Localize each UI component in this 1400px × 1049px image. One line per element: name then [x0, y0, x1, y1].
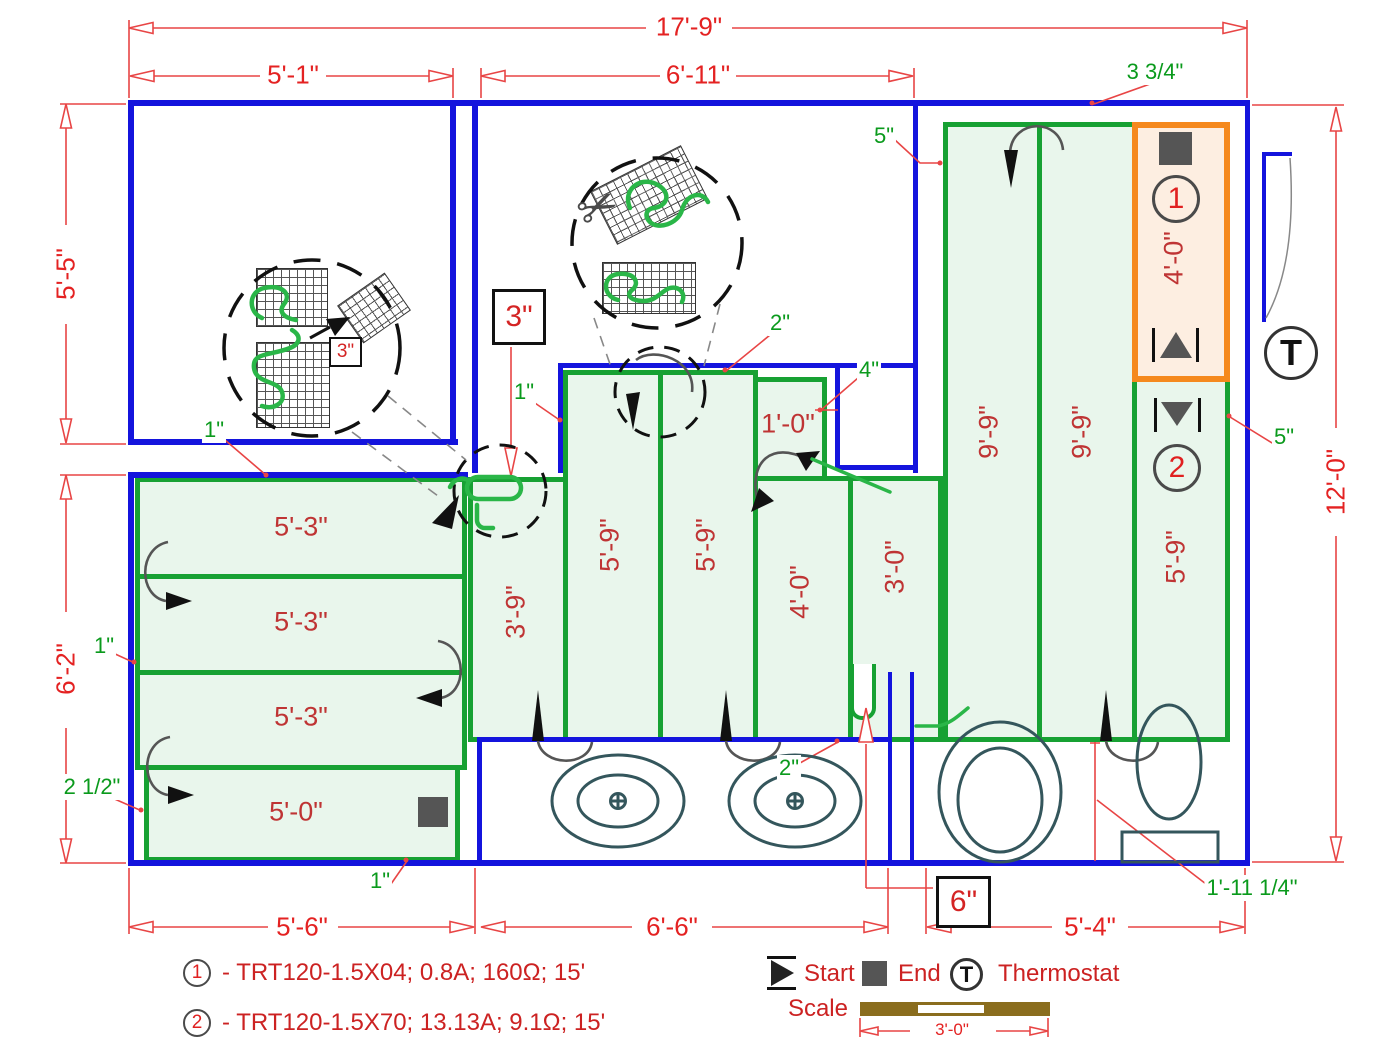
mat-label-1-0: 1'-0" [761, 409, 815, 440]
wall-vanity-top [477, 737, 890, 742]
gap-2-sink-label: 2" [777, 755, 801, 781]
mat-label-area1: 4'-0" [1159, 231, 1190, 285]
dim-room2-width: 6'-11" [662, 60, 734, 91]
dim-room1-height: 5'-5" [51, 244, 82, 304]
wall-stub-a [888, 672, 892, 866]
box-3-detail-text: 3" [337, 341, 354, 363]
box-3-detail: 3" [329, 337, 362, 367]
legend-start-bar-top [767, 956, 796, 959]
wall-top [128, 100, 1250, 106]
mat-label-5-9a: 5'-9" [595, 518, 626, 572]
gap-4-label: 4" [857, 357, 881, 383]
legend-thermostat-label: Thermostat [998, 960, 1119, 988]
wall-room1-right [450, 100, 456, 445]
scale-bar-white-segment [918, 1005, 984, 1013]
wall-room1-left [128, 100, 134, 445]
area2-number-circle: 2 [1153, 444, 1201, 492]
dim-bottom-middle: 6'-6" [642, 912, 702, 943]
mat-detail-hatch-1 [256, 268, 328, 327]
wall-right [1245, 100, 1250, 866]
area1-number-circle: 1 [1152, 175, 1200, 223]
legend-end-icon [862, 961, 887, 986]
dim-scale-length: 3'-0" [931, 1020, 973, 1040]
legend-start-label: Start [804, 960, 855, 988]
mat-label-area2: 5'-9" [1161, 530, 1192, 584]
start-symbol-bar-right [1196, 328, 1199, 362]
cable-slot [850, 664, 876, 720]
door-leaf-h [1262, 152, 1292, 156]
door-leaf-v [1262, 152, 1266, 322]
legend-end-label: End [898, 960, 941, 988]
mat-label-row3: 5'-3" [274, 702, 328, 733]
gap-5-right-label: 5" [1272, 424, 1296, 450]
mat-label-4-0: 4'-0" [785, 565, 816, 619]
legend-start-icon [771, 960, 794, 986]
area1-number: 1 [1168, 182, 1185, 216]
mat-label-right2: 9'-9" [1067, 405, 1098, 459]
end-symbol-area1 [1159, 132, 1192, 165]
wall-room2-left [472, 100, 478, 473]
wall-room2-right [913, 100, 918, 473]
mat-label-row2: 5'-3" [274, 607, 328, 638]
mat-detail-hatch-4 [602, 262, 696, 314]
dim-bottom-right: 5'-4" [1060, 912, 1120, 943]
box-6: 6" [936, 876, 991, 928]
scale-bar [860, 1002, 1050, 1016]
start-symbol-bar-left [1152, 328, 1155, 362]
gap-1-bottom-label: 1" [368, 868, 392, 894]
gap-2-half-label: 2 1/2" [62, 774, 123, 800]
mat-label-3-9: 3'-9" [501, 585, 532, 639]
mat-detail-hatch-2 [256, 342, 330, 428]
legend-start-bar-bottom [767, 987, 796, 990]
gap-2-mid-label: 2" [768, 310, 792, 336]
start-symbol-area1 [1160, 332, 1192, 358]
mat-detail-hatch-cut [337, 273, 411, 344]
mat-label-row1: 5'-3" [274, 512, 328, 543]
legend-thermostat-icon: T [950, 958, 983, 991]
dim-room1-width: 5'-1" [263, 60, 323, 91]
dim-total-width: 17'-9" [652, 12, 726, 43]
wall-kitchen-v2 [835, 363, 840, 468]
end-symbol-bar-right [1198, 398, 1201, 432]
gap-5-top-label: 5" [872, 123, 896, 149]
gap-1-room1-label: 1" [202, 417, 226, 443]
wall-vanity-left [477, 737, 482, 866]
wall-kitchen-h2 [835, 465, 915, 470]
legend-thermostat-letter: T [960, 962, 973, 988]
thermostat-symbol: T [1264, 326, 1318, 380]
box-6-text: 6" [950, 885, 977, 919]
area2-number: 2 [1169, 451, 1186, 485]
legend-item2-number: 2 [192, 1012, 203, 1034]
mat-label-row4: 5'-0" [269, 797, 323, 828]
mat-label-5-9b: 5'-9" [691, 518, 722, 572]
end-symbol-area2 [1161, 402, 1193, 426]
wall-room1-bottom [128, 439, 458, 445]
box-3-room2-text: 3" [505, 300, 532, 334]
legend-item1-text: - TRT120-1.5X04; 0.8A; 160Ω; 15' [222, 959, 585, 987]
dim-bottom-left: 5'-6" [272, 912, 332, 943]
gap-3-34-label: 3 3/4" [1125, 59, 1186, 85]
mat-label-right1: 9'-9" [974, 405, 1005, 459]
wall-lowerleft-top [128, 472, 468, 478]
thermostat-letter: T [1280, 332, 1302, 374]
legend-item2-text: - TRT120-1.5X70; 13.13A; 9.1Ω; 15' [222, 1009, 605, 1037]
legend-item1-circle: 1 [183, 959, 211, 987]
legend-item2-circle: 2 [183, 1009, 211, 1037]
end-symbol-bar-left [1154, 398, 1157, 432]
dim-left-lower-height: 6'-2" [51, 639, 82, 699]
wall-stub-b [910, 672, 914, 866]
dim-total-height: 12'-0" [1321, 445, 1352, 519]
mat-label-3-0: 3'-0" [880, 540, 911, 594]
gap-1-left-label: 1" [92, 633, 116, 659]
box-3-room2: 3" [492, 289, 546, 345]
legend-scale-label: Scale [788, 995, 848, 1023]
legend-item1-number: 1 [192, 962, 203, 984]
wall-left-lower [128, 472, 134, 865]
wall-bottom [128, 860, 1250, 866]
gap-1-mid-label: 1" [512, 379, 536, 405]
floor-plan: 1 2 T ✂ 17'-9" 5'-1" 6'-11" 5'-5" 6'-2" … [0, 0, 1400, 1049]
gap-1-11-label: 1'-11 1/4" [1204, 875, 1299, 901]
wall-kitchen-v1 [558, 363, 563, 473]
end-symbol-row4 [418, 797, 448, 827]
